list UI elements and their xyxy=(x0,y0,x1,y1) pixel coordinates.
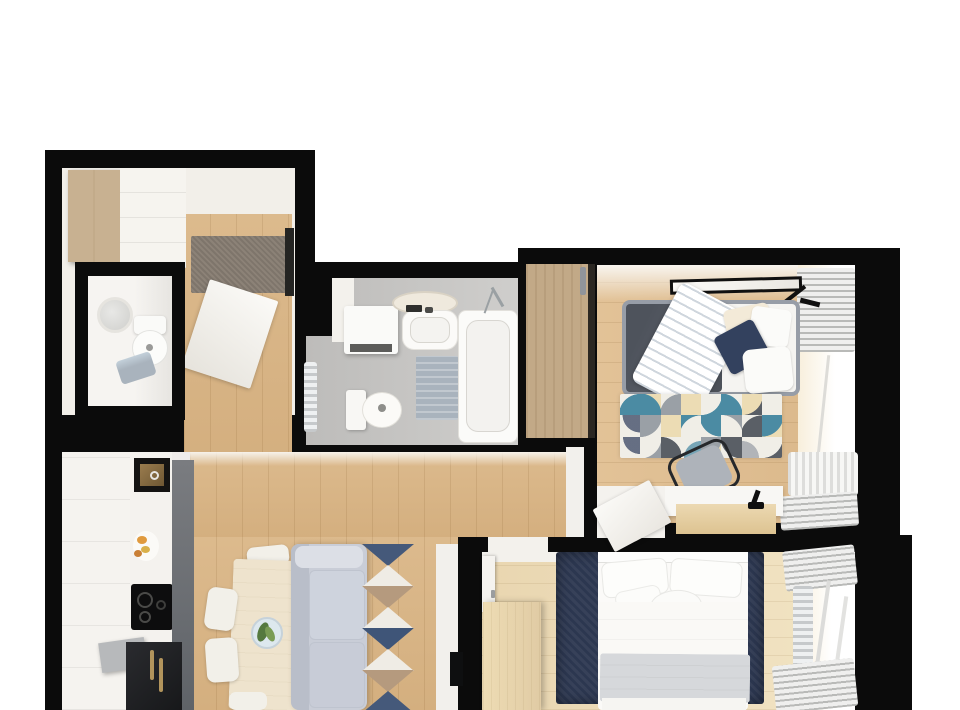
sink-basin xyxy=(410,317,450,343)
bathroom-wall-notch xyxy=(306,278,332,336)
bath-mat xyxy=(416,356,458,420)
living-rug-triangles xyxy=(362,544,414,710)
cooktop-ring-3 xyxy=(156,600,166,610)
bed2-foot-sheet xyxy=(602,698,746,710)
rug-tile xyxy=(742,415,762,436)
bedroom2-curtain-top xyxy=(782,544,858,591)
living-ceiling-sheen xyxy=(190,452,566,466)
bedroom1-curtain-bottom xyxy=(779,491,859,530)
rug-tile xyxy=(620,437,640,458)
rug-tile xyxy=(762,394,782,415)
rug-tile xyxy=(661,415,681,436)
bedroom1-curtain-top xyxy=(797,268,855,352)
rug-tile xyxy=(742,437,762,458)
rug-tile xyxy=(661,394,681,415)
rug-triangle xyxy=(362,565,414,587)
bed1-pillow-white-2 xyxy=(742,346,794,395)
sofa-arm-pillow xyxy=(295,546,363,568)
rug-triangle xyxy=(362,607,414,629)
rug-tile xyxy=(681,394,701,415)
rug-tile xyxy=(681,415,701,436)
rug-tile xyxy=(640,394,660,415)
sofa-cushion-1 xyxy=(309,570,365,640)
rug-triangle xyxy=(362,691,414,710)
closet-handle xyxy=(580,267,586,295)
sofa-back xyxy=(291,544,309,710)
rug-triangle xyxy=(362,628,414,650)
bathtub-inner xyxy=(466,320,510,432)
rug-triangle xyxy=(362,649,414,671)
desk-lamp-head xyxy=(748,502,764,509)
rug-tile xyxy=(620,394,640,415)
rug-triangle xyxy=(362,586,414,608)
rug-tile xyxy=(640,415,660,436)
fridge xyxy=(126,642,182,710)
floor-plan xyxy=(0,0,960,710)
cooktop-ring-1 xyxy=(137,592,153,608)
wc-toilet-flush xyxy=(146,344,153,351)
bedroom2-curtain-bottom xyxy=(772,658,859,710)
sink-faucet xyxy=(425,307,433,313)
fridge-handle-1 xyxy=(150,650,154,680)
rug-tile xyxy=(640,437,660,458)
dining-chair-bottom xyxy=(229,692,267,710)
corridor-ledge xyxy=(566,447,584,537)
wall-right-lower xyxy=(855,535,912,710)
fridge-handle-2 xyxy=(159,658,163,692)
wc-mirror xyxy=(97,297,133,333)
towel-radiator xyxy=(304,362,317,432)
food-lemon xyxy=(141,546,150,553)
rug-tile xyxy=(701,415,721,436)
dining-chair-left-1 xyxy=(203,586,239,632)
wall-left-lower xyxy=(45,440,62,710)
bedroom1-radiator xyxy=(788,452,858,496)
sink-tray xyxy=(406,305,422,312)
rug-tile xyxy=(762,437,782,458)
dining-chair-left-2 xyxy=(205,637,240,683)
food-fruit xyxy=(134,550,142,557)
rug-tile xyxy=(762,415,782,436)
bedroom2-doorway xyxy=(488,537,548,552)
bedroom2-radiator xyxy=(793,586,813,666)
entry-doormat xyxy=(191,236,292,293)
cooktop xyxy=(131,584,173,630)
rug-tile xyxy=(620,415,640,436)
tv xyxy=(450,652,463,686)
bedroom2-door-handle xyxy=(491,590,495,598)
kitchen-sink-drain xyxy=(150,471,159,480)
washer-slot xyxy=(350,344,392,352)
rug-tile xyxy=(721,415,741,436)
rug-tile xyxy=(721,394,741,415)
closet-slide-rail xyxy=(588,264,595,438)
rug-tile xyxy=(701,394,721,415)
kitchen-cabinets xyxy=(62,452,130,710)
toilet-flush-button xyxy=(378,404,386,412)
bedroom2-dresser xyxy=(483,602,541,710)
rug-tile xyxy=(742,394,762,415)
hall-closet xyxy=(120,168,186,268)
rug-triangle xyxy=(362,544,414,566)
rug-triangle xyxy=(362,670,414,692)
entry-door-frame xyxy=(285,228,294,296)
bed2-blanket xyxy=(600,653,750,702)
hall-wardrobe xyxy=(68,170,120,262)
cooktop-ring-2 xyxy=(139,611,151,623)
food-orange xyxy=(137,536,147,544)
sofa-cushion-2 xyxy=(309,642,365,708)
